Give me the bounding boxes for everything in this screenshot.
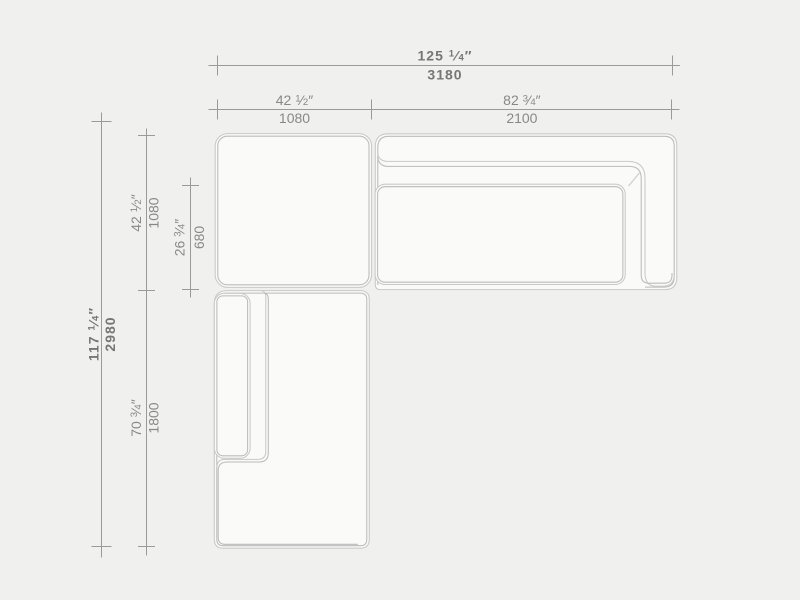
svg-text:42 1⁄2″: 42 1⁄2″ [276,92,314,108]
svg-text:1800: 1800 [146,402,162,433]
svg-text:82 3⁄4″: 82 3⁄4″ [503,92,541,108]
svg-text:680: 680 [191,226,207,250]
svg-text:3180: 3180 [427,66,462,82]
svg-text:26 3⁄4″: 26 3⁄4″ [171,219,187,257]
svg-text:2100: 2100 [506,110,537,126]
svg-text:1080: 1080 [146,197,162,228]
svg-text:70 3⁄4″: 70 3⁄4″ [128,399,144,437]
svg-text:2980: 2980 [102,316,118,351]
svg-text:117 1⁄4″: 117 1⁄4″ [86,307,102,361]
svg-text:42 1⁄2″: 42 1⁄2″ [128,194,144,232]
svg-text:125 1⁄4″: 125 1⁄4″ [418,47,473,63]
svg-text:1080: 1080 [279,110,310,126]
